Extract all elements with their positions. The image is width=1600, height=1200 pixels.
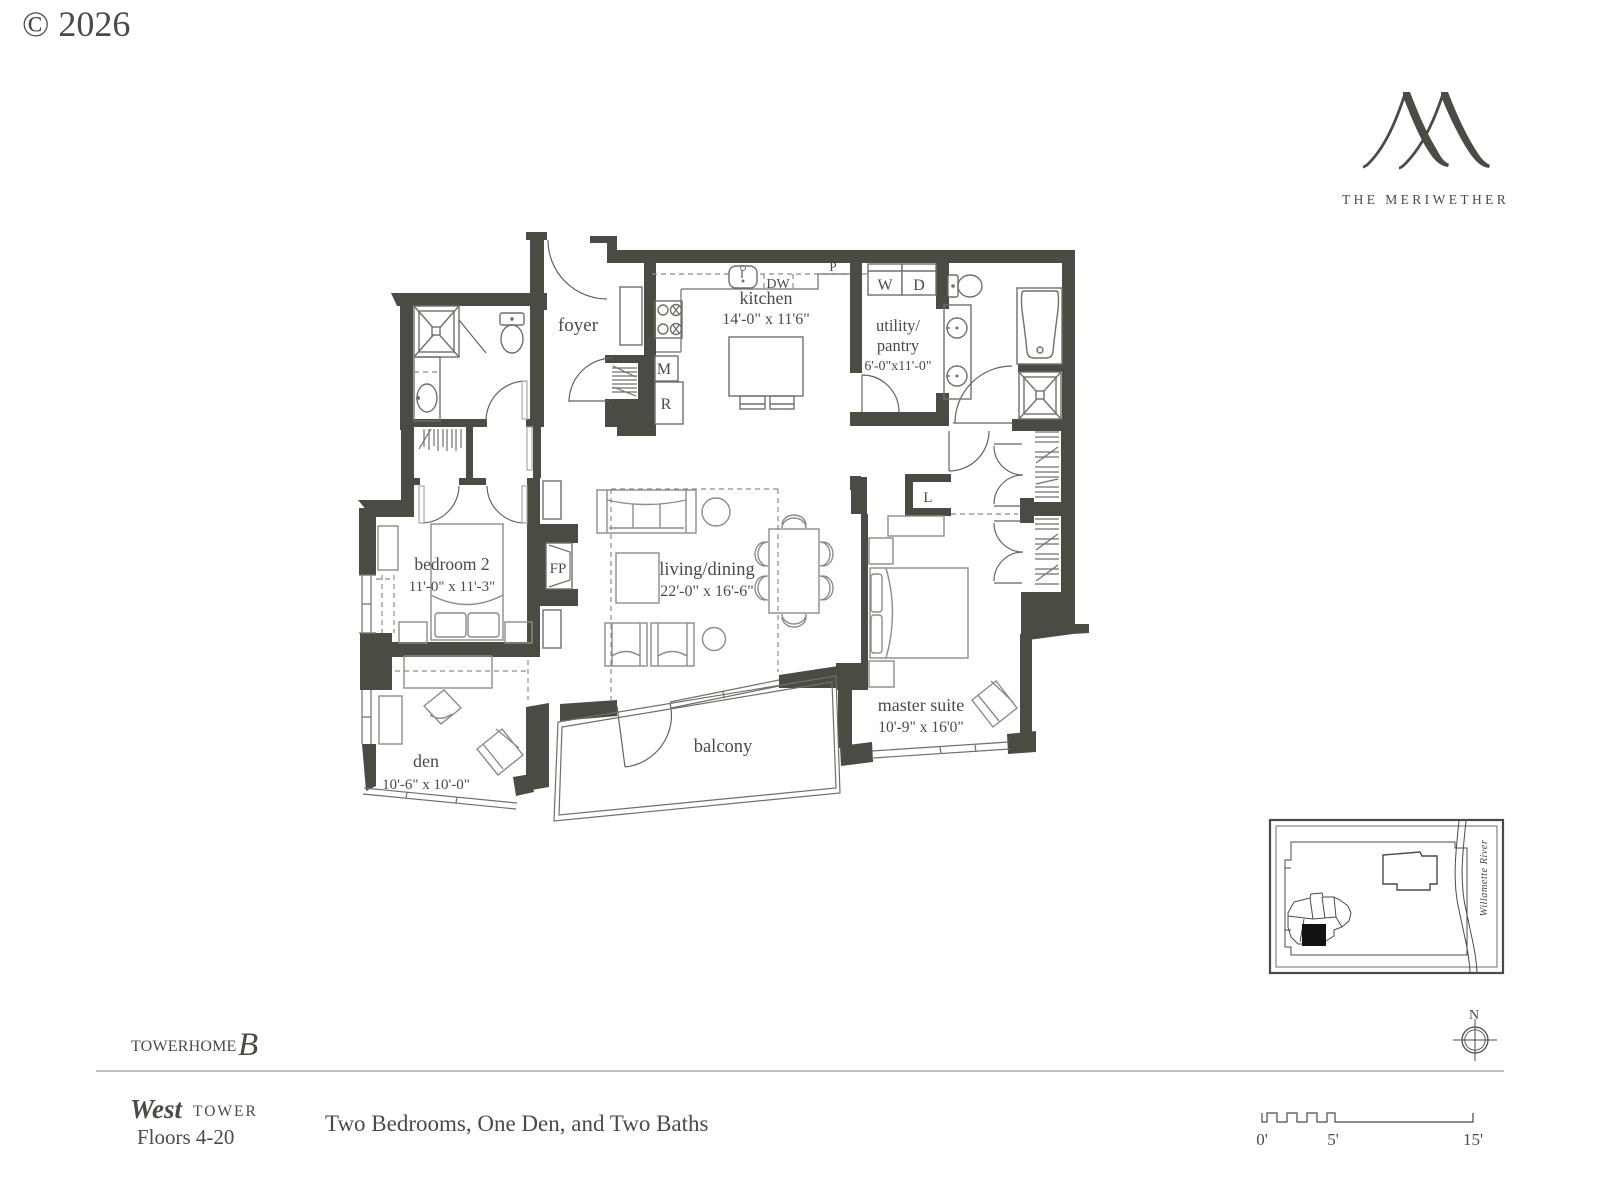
svg-text:© 2026: © 2026 bbox=[22, 4, 130, 44]
svg-text:balcony: balcony bbox=[694, 737, 753, 757]
svg-text:14'-0" x 11'6": 14'-0" x 11'6" bbox=[722, 311, 810, 328]
svg-text:D: D bbox=[913, 277, 925, 294]
svg-text:TOWER: TOWER bbox=[193, 1103, 258, 1120]
svg-text:W: W bbox=[877, 277, 893, 294]
svg-text:master suite: master suite bbox=[878, 695, 964, 715]
svg-text:B: B bbox=[238, 1027, 258, 1063]
svg-text:6'-0"x11'-0": 6'-0"x11'-0" bbox=[864, 359, 931, 374]
svg-text:FP: FP bbox=[550, 561, 567, 577]
svg-text:foyer: foyer bbox=[558, 315, 599, 336]
svg-text:Two Bedrooms, One Den, and Two: Two Bedrooms, One Den, and Two Baths bbox=[325, 1111, 709, 1136]
svg-text:R: R bbox=[661, 396, 672, 413]
svg-text:living/dining: living/dining bbox=[659, 560, 755, 580]
svg-text:P: P bbox=[829, 259, 836, 274]
svg-text:N: N bbox=[1469, 1008, 1479, 1023]
svg-text:10'-6" x 10'-0": 10'-6" x 10'-0" bbox=[382, 777, 470, 793]
svg-text:11'-0" x 11'-3": 11'-0" x 11'-3" bbox=[409, 579, 496, 595]
svg-text:Willamette River: Willamette River bbox=[1479, 839, 1490, 916]
svg-text:pantry: pantry bbox=[877, 336, 920, 355]
svg-text:22'-0" x 16'-6": 22'-0" x 16'-6" bbox=[660, 583, 753, 600]
svg-text:15': 15' bbox=[1463, 1130, 1483, 1149]
svg-text:THE MERIWETHER: THE MERIWETHER bbox=[1342, 192, 1509, 207]
svg-text:DW: DW bbox=[766, 277, 790, 292]
svg-text:bedroom 2: bedroom 2 bbox=[414, 554, 489, 574]
svg-text:10'-9" x 16'0": 10'-9" x 16'0" bbox=[878, 719, 963, 736]
svg-text:utility/: utility/ bbox=[876, 316, 920, 335]
svg-text:TOWERHOME: TOWERHOME bbox=[131, 1038, 237, 1055]
svg-text:West: West bbox=[130, 1094, 183, 1124]
svg-text:M: M bbox=[657, 361, 671, 378]
svg-text:0': 0' bbox=[1256, 1130, 1268, 1149]
svg-text:den: den bbox=[413, 751, 439, 771]
svg-text:5': 5' bbox=[1327, 1130, 1339, 1149]
svg-text:Floors 4-20: Floors 4-20 bbox=[137, 1125, 234, 1149]
svg-text:L: L bbox=[923, 490, 932, 506]
